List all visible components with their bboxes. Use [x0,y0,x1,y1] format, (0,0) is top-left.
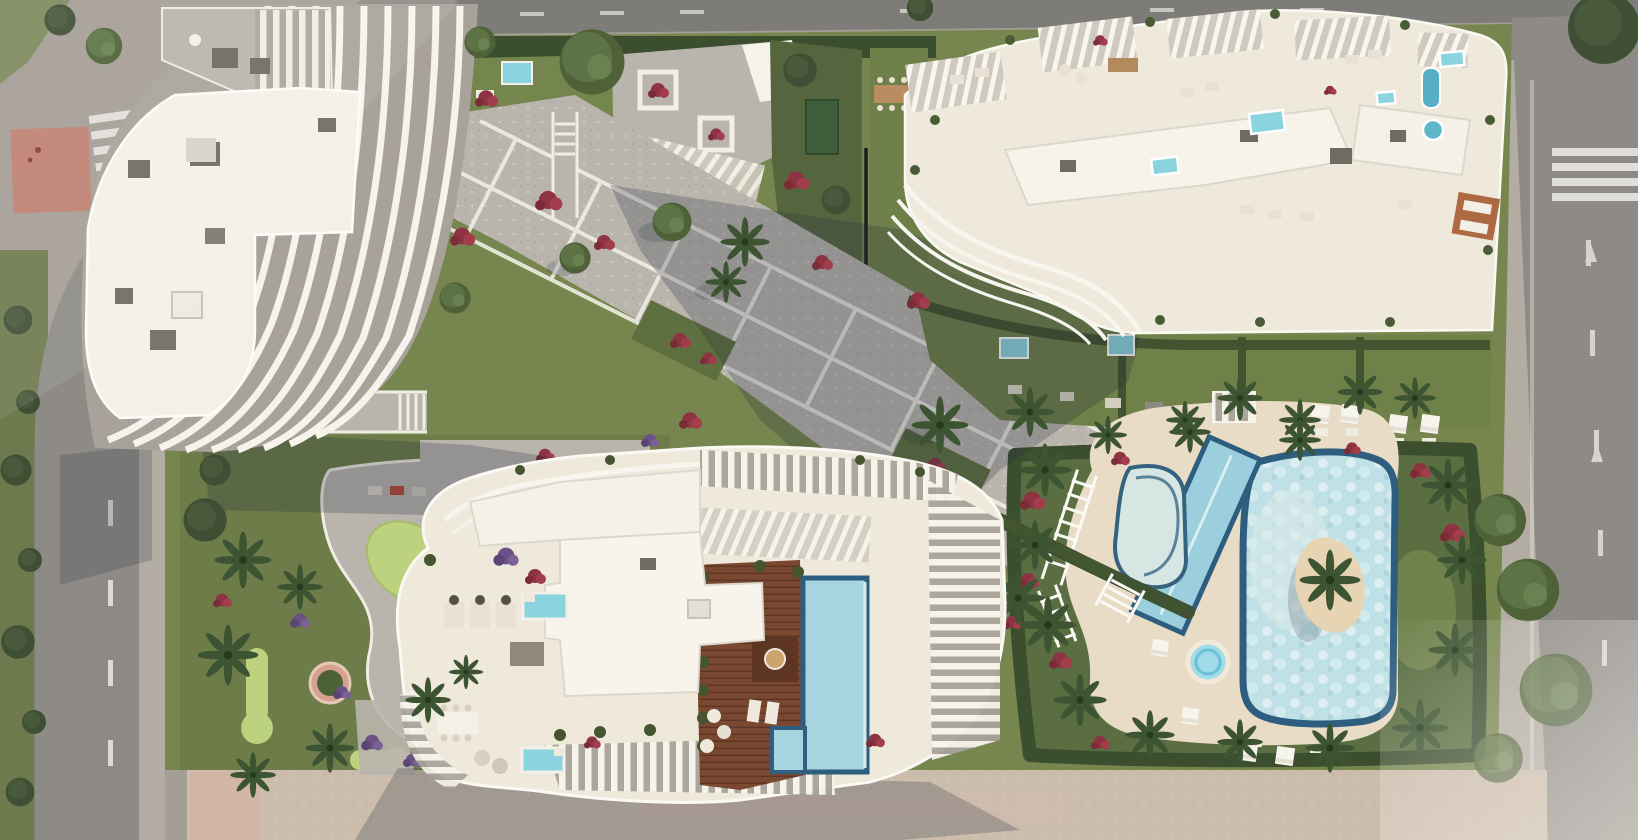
palm-tree [1053,673,1106,726]
palm-tree [912,397,969,454]
parasol [1151,639,1169,657]
palm-tree [1018,443,1071,496]
terrace-pouf [474,750,490,766]
infinity-pool-extension [772,728,805,772]
palm-tree [1337,369,1383,415]
terrace-pouf [492,758,508,774]
east-fin-band [928,480,1000,760]
palm-tree [1437,535,1486,584]
garden-plunge-pool [502,62,532,84]
deck-pouf [700,739,714,753]
kids-pool [1115,466,1186,587]
spa-tub [1422,68,1440,108]
deck-pouf [717,725,731,739]
tree [1497,559,1559,621]
palm-tree [1005,387,1054,436]
palm-tree [1305,723,1354,772]
green-shed [806,100,838,154]
spa-round [1423,120,1443,140]
palm-tree [1279,419,1321,461]
palm-tree [1010,520,1059,569]
tree [22,710,46,734]
tree [6,778,35,807]
aerial-render: Aerial 3D render of a seafront residenti… [0,0,1638,840]
deck-pergola-slats [699,508,871,563]
palm-tree [1217,719,1263,765]
parasol [1181,707,1199,725]
tree [559,242,590,273]
rooftop-dining-table [1108,58,1138,72]
palm-tree [1020,597,1077,654]
tree [560,30,625,95]
palm-tree [198,625,259,686]
building-south [397,447,1005,803]
tree [1,625,35,659]
tree [183,498,226,541]
palm-tree [1217,375,1263,421]
palm-tree [230,752,276,798]
palm-tree [305,723,354,772]
site-plan-svg: Aerial 3D render of a seafront residenti… [0,0,1638,840]
parasol [1275,746,1295,766]
building-north [888,9,1506,344]
parasol [1420,414,1440,434]
bottom-right-haze [1380,620,1638,840]
deck-pouf [707,709,721,723]
tree [18,548,42,572]
tree [0,454,31,485]
lounger [1346,428,1358,436]
tree [822,186,851,215]
palm-tree [1089,416,1127,454]
palm-tree [1125,710,1174,759]
tree [653,203,692,242]
deck-table [765,649,785,669]
palm-tree [405,677,451,723]
tree [199,454,230,485]
tree [464,26,495,57]
palm-tree [1421,458,1474,511]
tree [439,282,470,313]
tree [1474,494,1526,546]
terrace-loungers [444,595,516,628]
gray-dining-set [510,642,544,666]
jacuzzi [1188,642,1228,682]
tree [783,53,817,87]
palm-tree [1394,377,1436,419]
palm-tree [1169,411,1211,453]
palm-tree [215,532,272,589]
palm-tree [277,564,323,610]
infinity-pool [803,578,867,772]
terracotta-lounge [1451,192,1500,241]
palm-tree [449,655,483,689]
island-palm [1300,550,1361,611]
lounger [1316,428,1328,436]
palm-tree [720,217,769,266]
palm-tree [705,261,747,303]
